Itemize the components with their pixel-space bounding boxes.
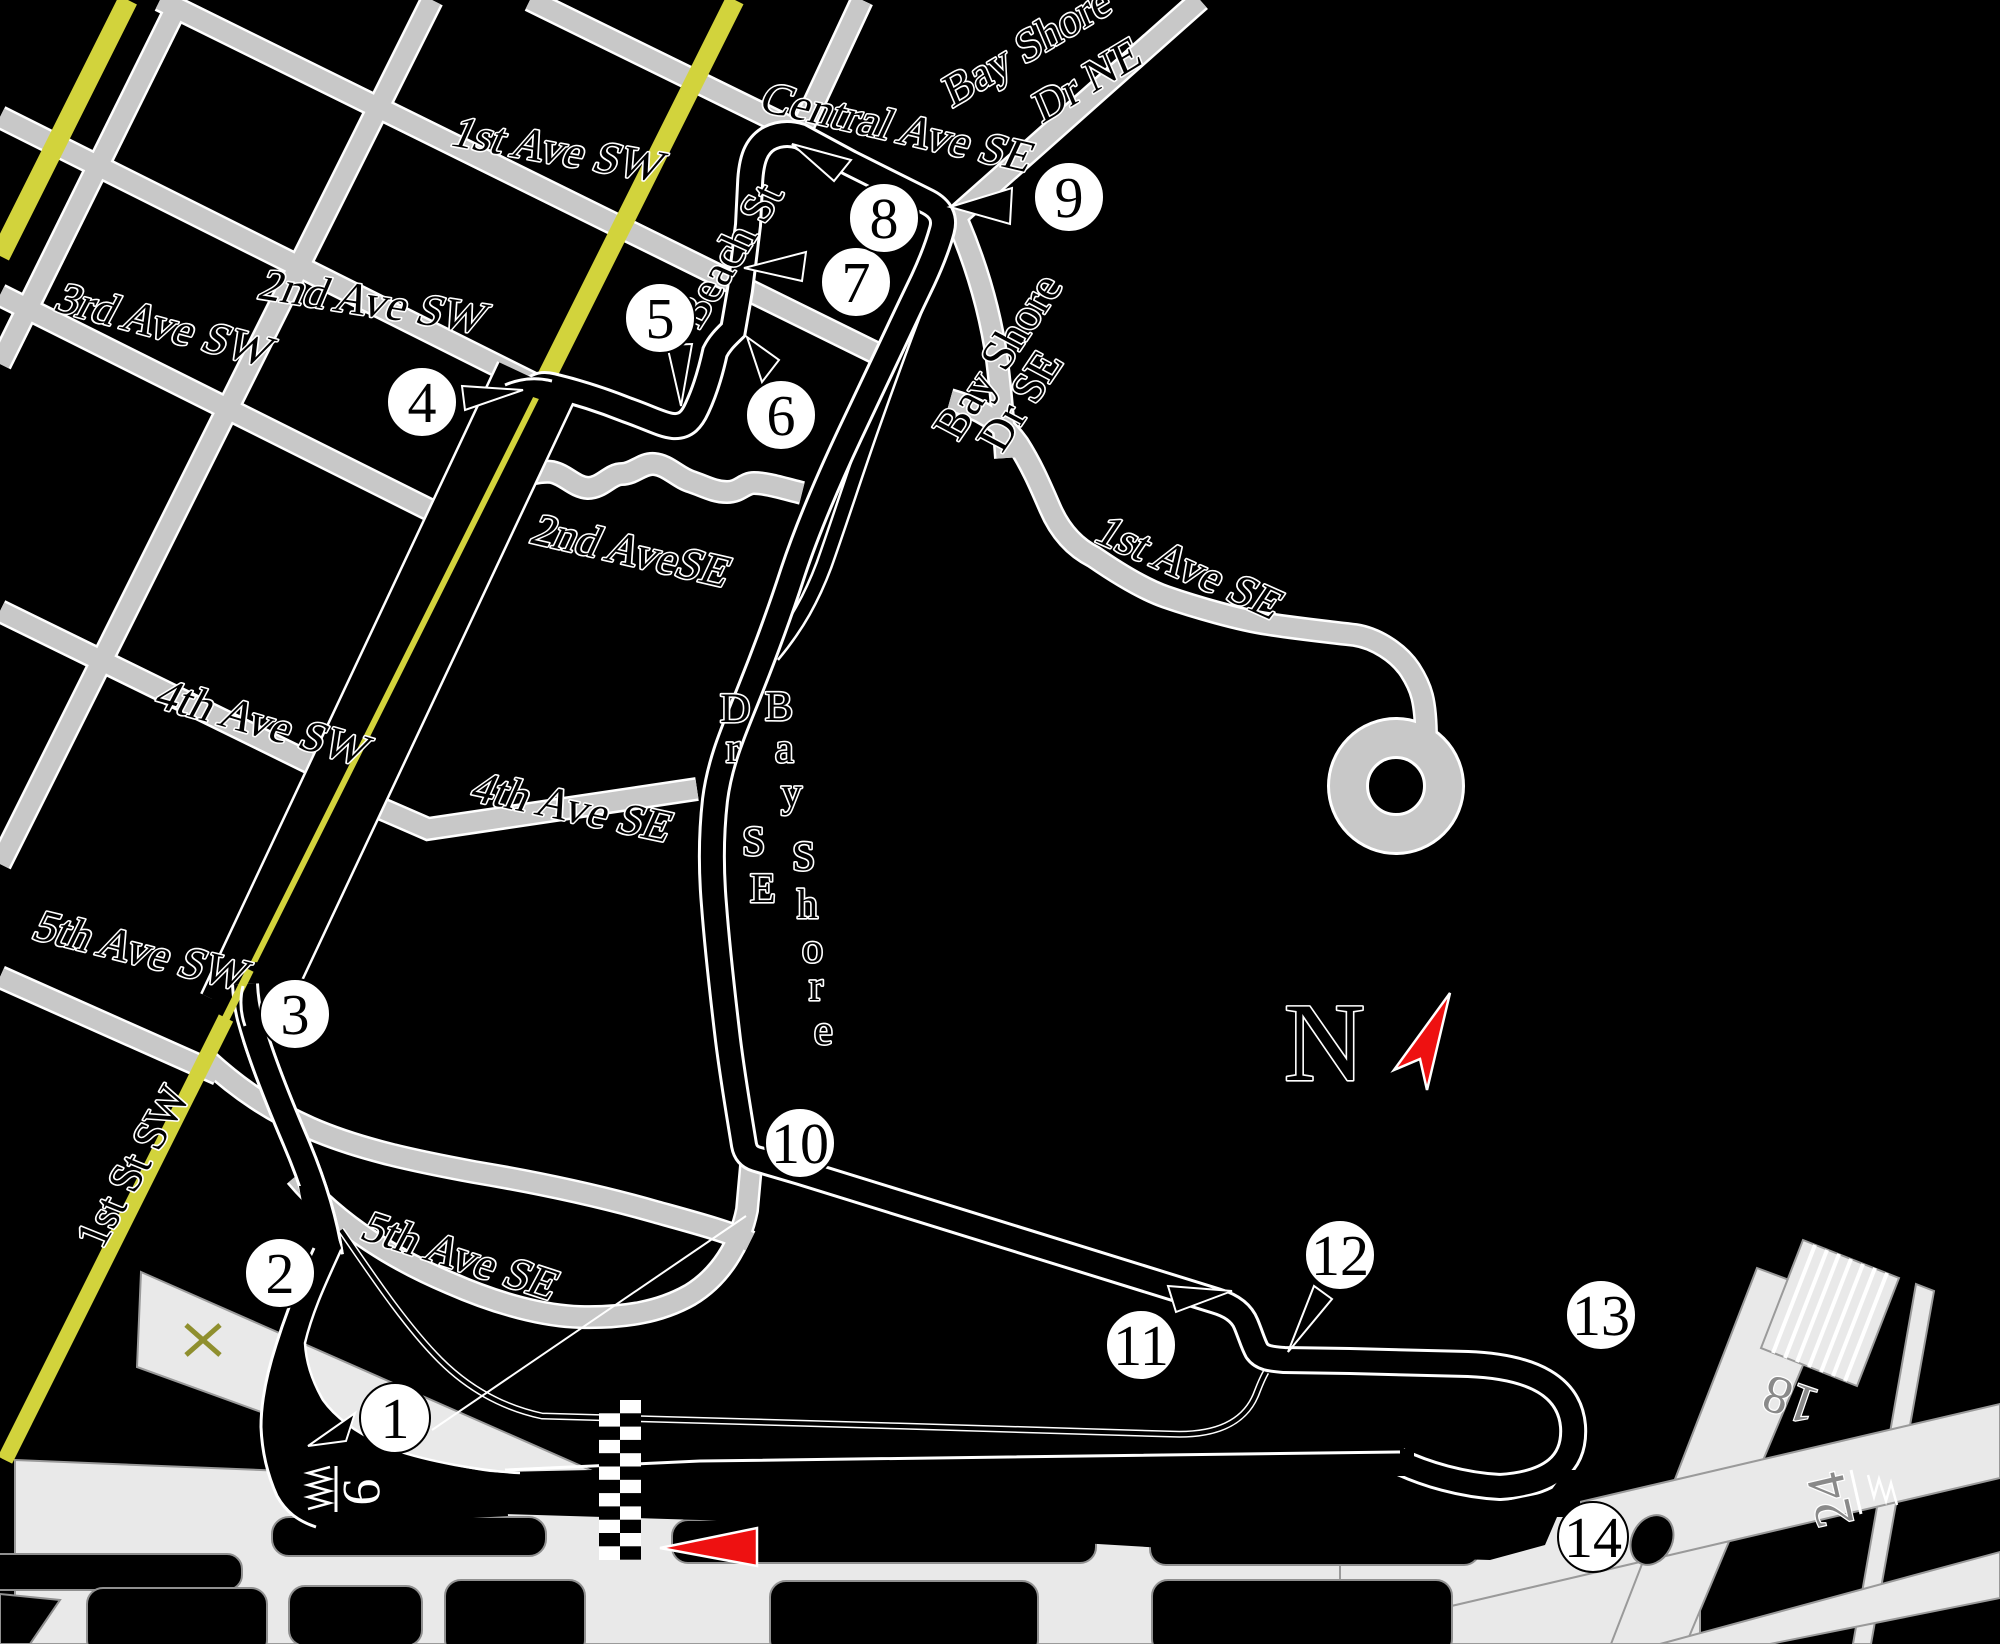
svg-text:r: r xyxy=(809,964,823,1010)
svg-text:11: 11 xyxy=(1113,1313,1169,1378)
svg-text:9: 9 xyxy=(1055,165,1084,230)
svg-text:N: N xyxy=(1284,981,1365,1105)
svg-text:5: 5 xyxy=(646,286,675,351)
svg-text:8: 8 xyxy=(870,186,899,251)
svg-text:S: S xyxy=(792,834,815,880)
svg-text:6: 6 xyxy=(767,383,796,448)
svg-text:13: 13 xyxy=(1572,1283,1630,1348)
svg-text:10: 10 xyxy=(771,1111,829,1176)
svg-text:9: 9 xyxy=(332,1479,392,1506)
svg-text:14: 14 xyxy=(1564,1505,1622,1570)
svg-text:h: h xyxy=(797,882,818,928)
svg-text:12: 12 xyxy=(1311,1223,1369,1288)
svg-text:S: S xyxy=(742,819,765,865)
svg-text:y: y xyxy=(781,770,802,816)
svg-text:r: r xyxy=(726,726,740,772)
svg-text:3: 3 xyxy=(281,982,310,1047)
svg-text:E: E xyxy=(750,866,776,912)
svg-text:e: e xyxy=(814,1008,833,1054)
svg-text:B: B xyxy=(765,684,793,730)
svg-text:4: 4 xyxy=(408,370,437,435)
svg-text:a: a xyxy=(775,726,794,772)
svg-text:1: 1 xyxy=(381,1386,410,1451)
svg-text:2: 2 xyxy=(266,1241,295,1306)
svg-text:7: 7 xyxy=(842,250,871,315)
